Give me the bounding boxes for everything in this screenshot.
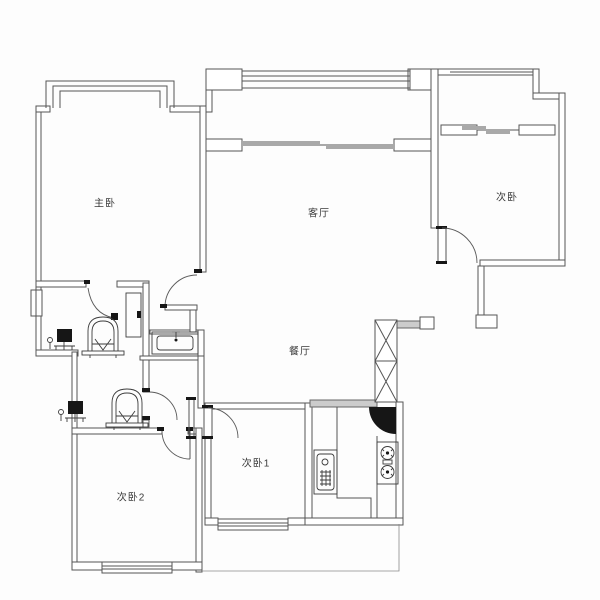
master-bedroom-door-icon (160, 269, 202, 310)
room-label-master-bedroom: 主卧 (94, 195, 116, 210)
toilet-icon (48, 329, 76, 350)
room-label-bedroom-1: 次卧1 (242, 455, 271, 470)
floorplan: 主卧 客厅 次卧 餐厅 次卧1 次卧2 (0, 0, 600, 600)
living-window-band-icon (242, 69, 410, 90)
bath1-window-icon (31, 290, 42, 316)
kitchen-sink-icon (314, 450, 337, 494)
water-heater-icon (106, 389, 148, 430)
vanity-sink-icon (152, 332, 198, 354)
ne-balcony-slider-icon (441, 125, 555, 135)
bedroom1-window-icon (218, 519, 288, 530)
room-label-living-room: 客厅 (308, 205, 330, 220)
gas-stove-icon (377, 442, 398, 484)
floorplan-drawing (0, 0, 600, 600)
vent-shaft-icon (375, 320, 397, 402)
bay-window-icon (46, 81, 174, 108)
room-label-bedroom-2: 次卧2 (117, 489, 146, 504)
bath2-door-icon (142, 388, 177, 420)
kitchen-door-icon (369, 407, 396, 434)
ne-bedroom-door-icon (436, 226, 477, 264)
living-balcony-slider-icon (206, 139, 431, 151)
kitchen-counter (337, 407, 377, 518)
water-heater-icon (82, 317, 124, 358)
bedroom2-window-icon (102, 562, 172, 573)
bedroom1-door-icon (202, 405, 238, 439)
room-label-dining-room: 餐厅 (289, 343, 311, 358)
room-label-bedroom-northeast: 次卧 (496, 189, 518, 204)
bath1-door-icon (84, 280, 118, 320)
shower-door-panel-icon (126, 293, 141, 337)
